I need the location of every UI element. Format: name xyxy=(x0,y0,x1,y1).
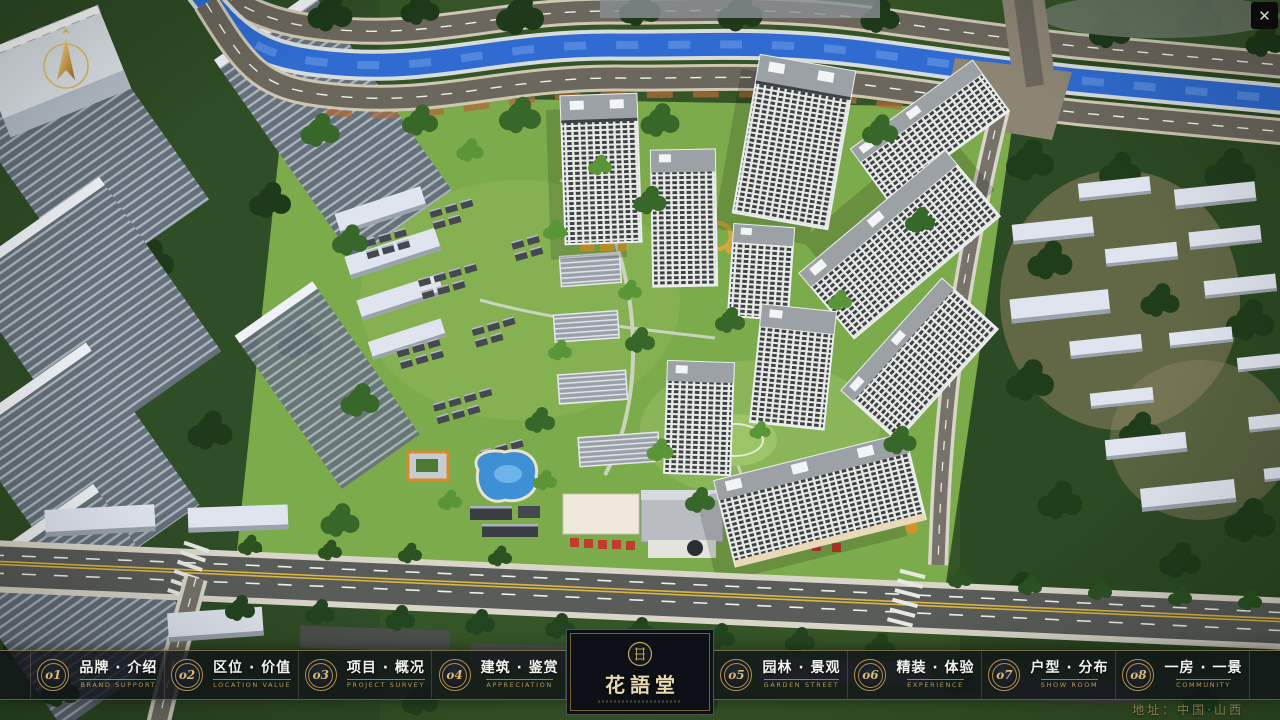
close-button[interactable]: ✕ xyxy=(1251,2,1278,29)
bottom-navbar: o1 品牌 · 介绍 BRAND SUPPORT o2 区位 · 价值 LOCA… xyxy=(0,650,1280,700)
project-name: 花語堂 xyxy=(605,669,680,698)
nav-label-en: LOCATION VALUE xyxy=(213,679,291,689)
nav-item-floorplan[interactable]: o7 户型 · 分布 SHOW ROOM xyxy=(982,651,1116,699)
nav-item-brand[interactable]: o1 品牌 · 介绍 BRAND SUPPORT xyxy=(30,651,165,699)
nav-medal-icon: o1 xyxy=(37,659,69,691)
nav-label-zh: 建筑 · 鉴赏 xyxy=(481,661,559,676)
nav-medal-icon: o4 xyxy=(439,659,471,691)
compass-north-marker xyxy=(62,28,70,34)
nav-item-architecture[interactable]: o4 建筑 · 鉴赏 APPRECIATION xyxy=(432,651,566,699)
nav-label-zh: 户型 · 分布 xyxy=(1030,661,1108,676)
nav-item-project[interactable]: o3 项目 · 概况 PROJECT SURVEY xyxy=(299,651,433,699)
nav-label-en: GARDEN STREET xyxy=(764,679,840,689)
nav-label-en: SHOW ROOM xyxy=(1041,679,1098,689)
nav-label-zh: 精装 · 体验 xyxy=(896,661,974,676)
nav-medal-icon: o7 xyxy=(988,659,1020,691)
nav-label-en: APPRECIATION xyxy=(486,679,552,689)
nav-item-views[interactable]: o8 一房 · 一景 COMMUNITY xyxy=(1116,651,1250,699)
close-icon: ✕ xyxy=(1258,7,1271,25)
nav-label-en: PROJECT SURVEY xyxy=(347,679,425,689)
sales-presentation-window: ✕ o1 品牌 · 介绍 BRAND SUPPORT o2 区位 · 价值 LO… xyxy=(0,0,1280,720)
nav-item-interior[interactable]: o6 精装 · 体验 EXPERIENCE xyxy=(848,651,982,699)
nav-label-zh: 品牌 · 介绍 xyxy=(79,661,157,676)
nav-label-zh: 区位 · 价值 xyxy=(213,661,291,676)
logo-tagline-rule xyxy=(598,700,682,703)
nav-label-en: COMMUNITY xyxy=(1176,679,1231,689)
nav-medal-icon: o5 xyxy=(720,659,752,691)
amenity-building xyxy=(408,452,448,480)
nav-item-garden[interactable]: o5 园林 · 景观 GARDEN STREET xyxy=(714,651,848,699)
nav-medal-icon: o2 xyxy=(171,659,203,691)
north-bank-building xyxy=(600,0,880,18)
site-plan-rendering[interactable] xyxy=(0,0,1280,720)
nav-medal-icon: o3 xyxy=(305,659,337,691)
nav-medal-icon: o6 xyxy=(854,659,886,691)
compass xyxy=(28,22,104,108)
nav-left-group: o1 品牌 · 介绍 BRAND SUPPORT o2 区位 · 价值 LOCA… xyxy=(0,651,566,699)
seal-icon xyxy=(627,641,653,667)
swimming-pool xyxy=(476,451,537,502)
project-address: 地址：中国·山西 xyxy=(1132,701,1244,718)
nav-item-location[interactable]: o2 区位 · 价值 LOCATION VALUE xyxy=(165,651,299,699)
nav-label-en: BRAND SUPPORT xyxy=(80,679,156,689)
nav-label-en: EXPERIENCE xyxy=(907,679,964,689)
nav-label-zh: 项目 · 概况 xyxy=(347,661,425,676)
nav-right-group: o5 园林 · 景观 GARDEN STREET o6 精装 · 体验 EXPE… xyxy=(714,651,1280,699)
nav-label-zh: 园林 · 景观 xyxy=(762,661,840,676)
nav-medal-icon: o8 xyxy=(1122,659,1154,691)
project-logo-panel[interactable]: 花語堂 xyxy=(566,629,714,715)
nav-label-zh: 一房 · 一景 xyxy=(1164,661,1242,676)
